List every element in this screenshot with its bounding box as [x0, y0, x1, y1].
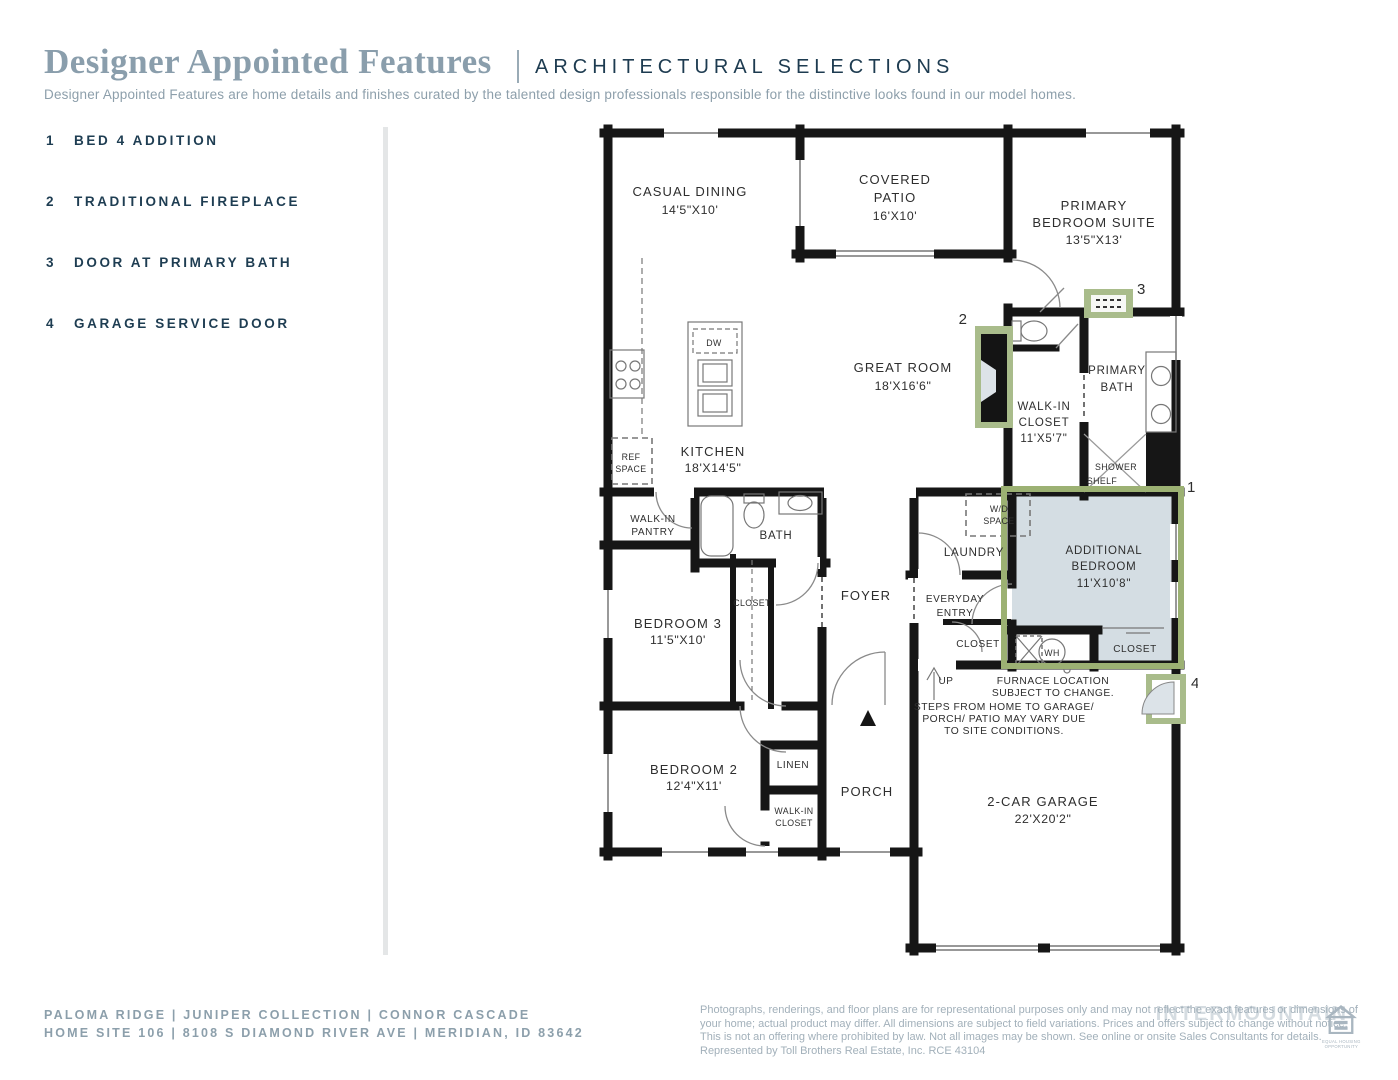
- room-bedroom2: BEDROOM 2: [650, 762, 738, 777]
- feature-number: 3: [46, 255, 74, 270]
- footer-line-1: PALOMA RIDGE | JUNIPER COLLECTION | CONN…: [44, 1006, 584, 1024]
- svg-text:SPACE: SPACE: [983, 516, 1014, 526]
- svg-text:13'5"X13': 13'5"X13': [1066, 233, 1123, 247]
- feature-label: GARAGE SERVICE DOOR: [74, 316, 290, 331]
- svg-text:11'X10'8": 11'X10'8": [1077, 578, 1131, 590]
- feature-number: 1: [46, 133, 74, 148]
- feature-label: BED 4 ADDITION: [74, 133, 219, 148]
- marker-2-fireplace: [975, 326, 1013, 428]
- page-title: Designer Appointed Features: [44, 42, 492, 82]
- feature-number: 4: [46, 316, 74, 331]
- vertical-divider: [383, 127, 388, 955]
- room-walk-in-pantry: WALK-IN: [630, 514, 676, 525]
- marker-number-4: 4: [1191, 675, 1198, 692]
- floor-plan: CASUAL DINING 14'5"X10' COVERED PATIO 16…: [598, 120, 1198, 965]
- footer-line-2: HOME SITE 106 | 8108 S DIAMOND RIVER AVE…: [44, 1024, 584, 1042]
- room-primary-suite: PRIMARY: [1061, 198, 1128, 213]
- room-walk-in-closet-bed2: WALK-IN: [774, 806, 813, 816]
- marker-number-1: 1: [1187, 479, 1195, 496]
- svg-text:16'X10': 16'X10': [873, 209, 917, 223]
- marker-3-primary-bath-door: [1084, 289, 1133, 318]
- label-linen: LINEN: [777, 760, 809, 771]
- svg-text:22'X20'2": 22'X20'2": [1015, 812, 1072, 826]
- room-casual-dining: CASUAL DINING: [633, 184, 748, 199]
- room-walk-in-closet-primary: WALK-IN: [1017, 401, 1070, 413]
- feature-item-1: 1 BED 4 ADDITION: [46, 133, 219, 148]
- label-up: UP: [938, 676, 953, 687]
- room-additional-bedroom: ADDITIONAL: [1065, 545, 1142, 557]
- note-steps: STEPS FROM HOME TO GARAGE/: [914, 702, 1094, 713]
- page-description: Designer Appointed Features are home det…: [44, 87, 1076, 102]
- label-dishwasher: DW: [706, 338, 722, 348]
- svg-text:18'X14'5": 18'X14'5": [685, 461, 742, 475]
- feature-item-3: 3 DOOR AT PRIMARY BATH: [46, 255, 292, 270]
- svg-text:CLOSET: CLOSET: [775, 818, 813, 828]
- flyer-page: Designer Appointed Features ARCHITECTURA…: [0, 0, 1398, 1080]
- section-title: ARCHITECTURAL SELECTIONS: [535, 56, 954, 79]
- label-water-heater: WH: [1044, 648, 1059, 658]
- svg-text:BEDROOM: BEDROOM: [1071, 561, 1136, 573]
- svg-text:BATH: BATH: [1100, 382, 1133, 394]
- svg-text:PATIO: PATIO: [874, 190, 917, 205]
- feature-label: DOOR AT PRIMARY BATH: [74, 255, 292, 270]
- svg-text:SPACE: SPACE: [615, 464, 646, 474]
- marker-number-3: 3: [1137, 281, 1145, 298]
- svg-text:PANTRY: PANTRY: [631, 527, 674, 538]
- equal-housing-house-icon: [1324, 1004, 1358, 1034]
- room-covered-patio: COVERED: [859, 172, 931, 187]
- svg-text:ENTRY: ENTRY: [937, 608, 974, 619]
- svg-text:14'5"X10': 14'5"X10': [662, 203, 719, 217]
- room-laundry: LAUNDRY: [944, 547, 1004, 559]
- feature-item-2: 2 TRADITIONAL FIREPLACE: [46, 194, 300, 209]
- feature-number: 2: [46, 194, 74, 209]
- label-wd-space: W/D: [990, 504, 1008, 514]
- svg-text:CLOSET: CLOSET: [1019, 417, 1070, 429]
- equal-housing-logo: EQUAL HOUSING OPPORTUNITY: [1322, 1004, 1361, 1049]
- room-great-room: GREAT ROOM: [854, 360, 953, 375]
- svg-text:SUBJECT TO CHANGE.: SUBJECT TO CHANGE.: [992, 688, 1114, 699]
- feature-label: TRADITIONAL FIREPLACE: [74, 194, 300, 209]
- label-shelf: SHELF: [1087, 476, 1118, 486]
- svg-text:PORCH/ PATIO MAY VARY DUE: PORCH/ PATIO MAY VARY DUE: [922, 714, 1085, 725]
- svg-text:BEDROOM SUITE: BEDROOM SUITE: [1032, 215, 1155, 230]
- marker-number-2: 2: [959, 311, 967, 328]
- label-closet-additional: CLOSET: [1113, 644, 1157, 655]
- svg-text:11'X5'7": 11'X5'7": [1020, 433, 1067, 445]
- shower-wall-block: [1146, 432, 1176, 492]
- room-garage: 2-CAR GARAGE: [987, 794, 1098, 809]
- svg-text:11'5"X10': 11'5"X10': [650, 633, 706, 647]
- svg-text:18'X16'6": 18'X16'6": [875, 379, 932, 393]
- label-shower: SHOWER: [1095, 462, 1137, 472]
- room-bath: BATH: [759, 530, 792, 542]
- room-everyday-entry: EVERYDAY: [926, 594, 984, 605]
- label-ref-space: REF: [622, 452, 641, 462]
- marker-4-garage-service-door: [1142, 674, 1186, 724]
- title-divider: [517, 50, 519, 83]
- feature-item-4: 4 GARAGE SERVICE DOOR: [46, 316, 290, 331]
- room-bedroom3: BEDROOM 3: [634, 616, 722, 631]
- label-closet-entry: CLOSET: [956, 639, 1000, 650]
- svg-text:TO SITE CONDITIONS.: TO SITE CONDITIONS.: [944, 726, 1064, 737]
- footer-community-info: PALOMA RIDGE | JUNIPER COLLECTION | CONN…: [44, 1006, 584, 1042]
- room-primary-bath: PRIMARY: [1088, 365, 1146, 377]
- room-porch: PORCH: [841, 784, 893, 799]
- note-furnace: FURNACE LOCATION: [997, 676, 1110, 687]
- svg-text:12'4"X11': 12'4"X11': [666, 779, 722, 793]
- entry-arrow: [860, 710, 876, 726]
- legal-disclaimer: Photographs, renderings, and floor plans…: [700, 1004, 1358, 1058]
- room-kitchen: KITCHEN: [681, 444, 746, 459]
- label-closet-bed3: CLOSET: [733, 598, 771, 608]
- room-foyer: FOYER: [841, 588, 891, 603]
